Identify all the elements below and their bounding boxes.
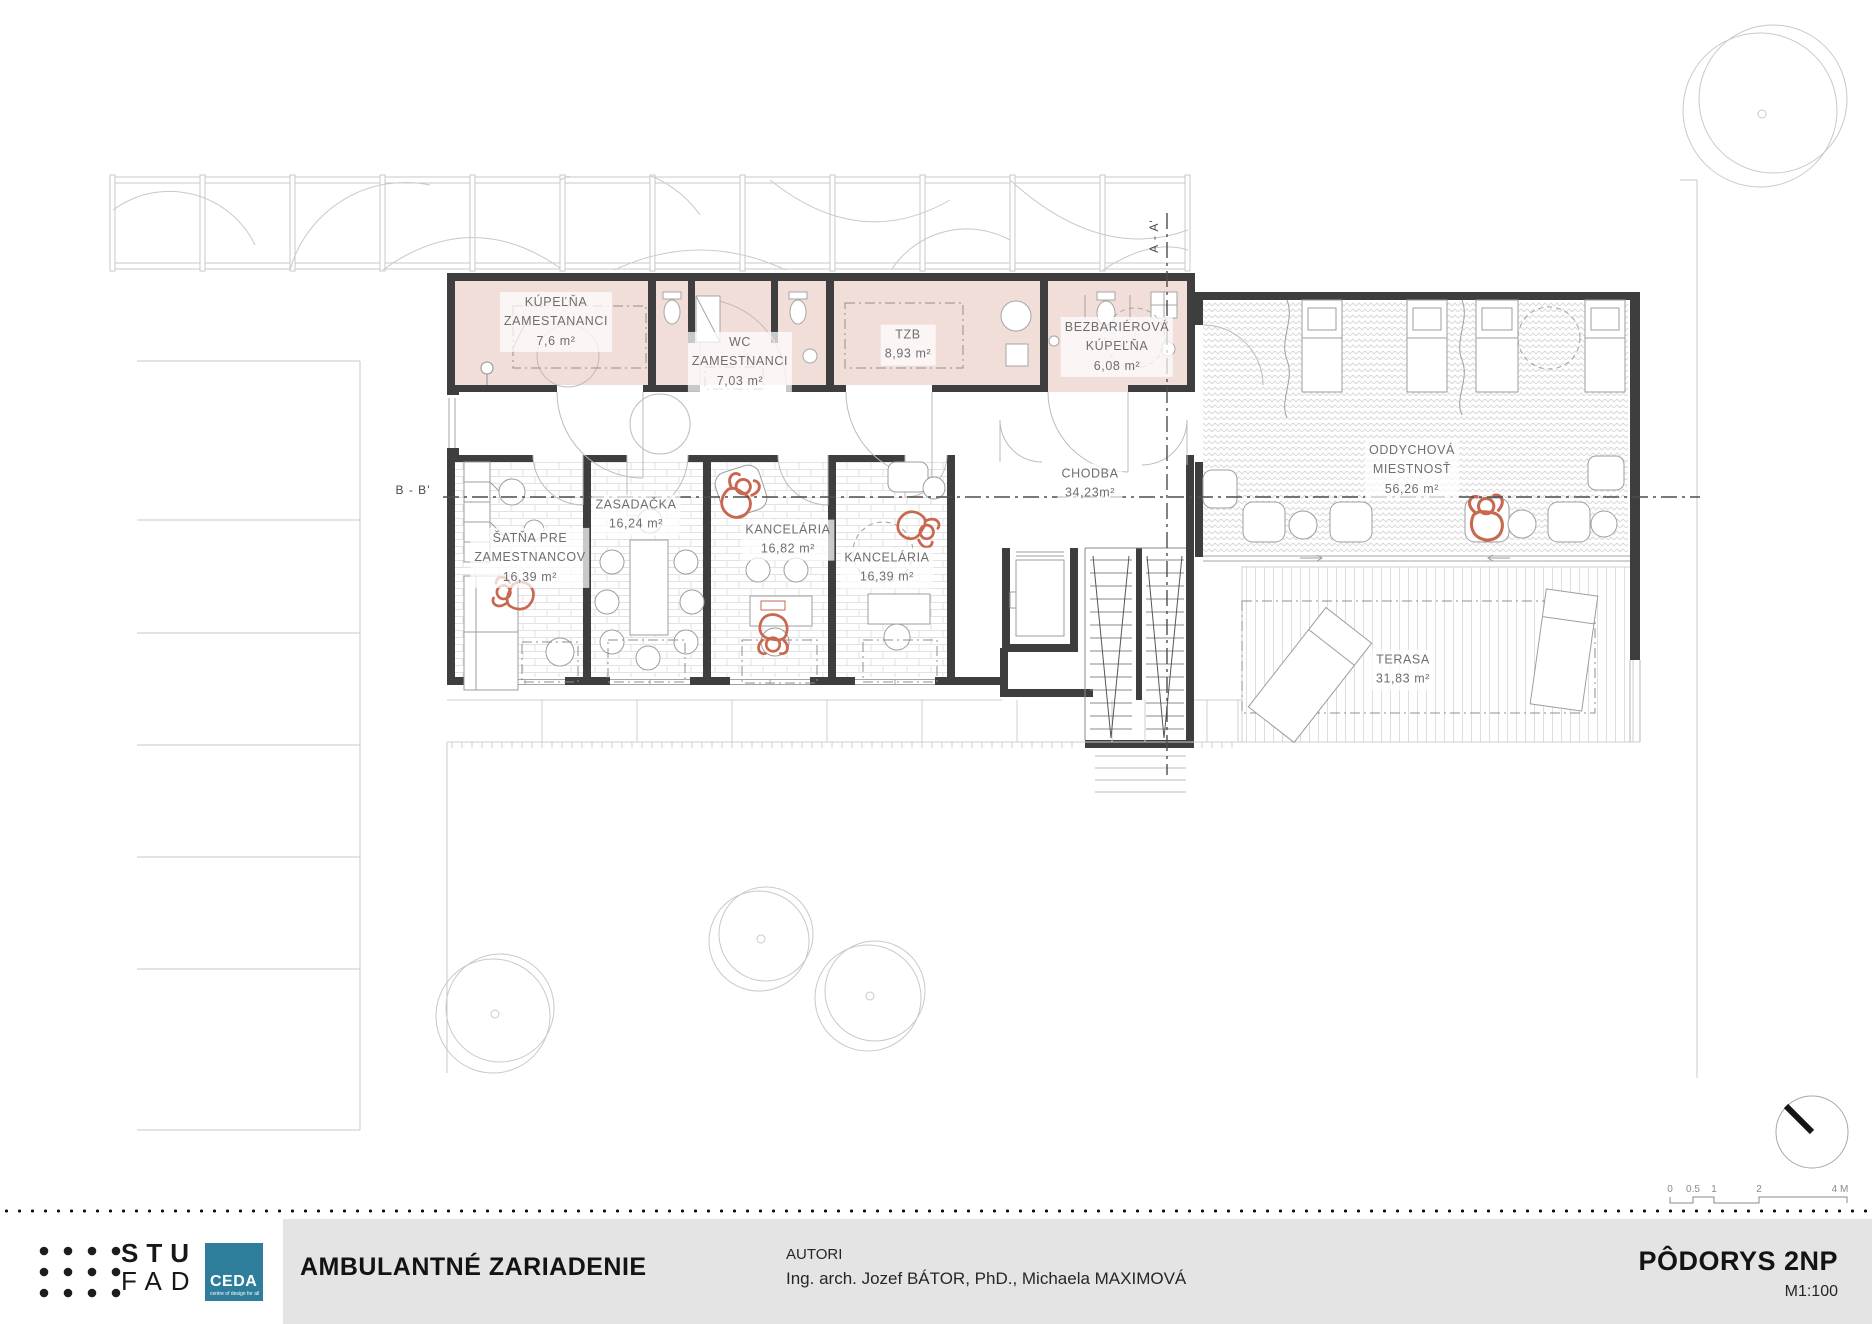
chair-icon [636, 646, 660, 670]
sink-icon [803, 349, 817, 363]
room-label-zasadacka: ZASADAČKA 16,24 m² [591, 495, 680, 536]
room-label-oddychova: ODDYCHOVÁ MIESTNOSŤ 56,26 m² [1365, 440, 1459, 500]
drawing-sheet: 0 0.5 1 2 4 M KÚPEĽŇA ZAMESTANANCI 7,6 m… [0, 0, 1872, 1324]
room-label-bezbar: BEZBARIÉROVÁ KÚPEĽŇA 6,08 m² [1061, 317, 1173, 377]
equipment-icon [1006, 344, 1028, 366]
room-name: ZAMESTNANCOV [474, 548, 585, 567]
site-pergola [110, 168, 1190, 272]
ceda-logo-subtext: centre of design for all [210, 1291, 259, 1297]
armchair-icon [1548, 502, 1590, 542]
room-area: 16,39 m² [844, 568, 929, 587]
side-table-icon [1508, 510, 1536, 538]
logo-fad: FAD [121, 1266, 199, 1297]
chair-icon [680, 590, 704, 614]
room-name: KANCELÁRIA [745, 521, 830, 540]
chair-icon [884, 624, 910, 650]
floor-plan-canvas: 0 0.5 1 2 4 M [0, 0, 1872, 1324]
bed-icon [1585, 300, 1625, 392]
toilet-icon [789, 292, 807, 324]
room-area: 7,6 m² [504, 332, 608, 351]
chair-icon [923, 477, 945, 499]
stu-dots-logo [36, 1241, 128, 1303]
room-name: KÚPEĽŇA [504, 293, 608, 312]
room-area: 8,93 m² [885, 345, 932, 364]
room-name: ZAMESTNANCI [692, 352, 788, 371]
section-label-b: B - B' [396, 483, 431, 497]
chair-icon [600, 550, 624, 574]
room-name: ODDYCHOVÁ [1369, 441, 1455, 460]
armchair-icon [1243, 502, 1285, 542]
room-label-kupelna: KÚPEĽŇA ZAMESTANANCI 7,6 m² [500, 292, 612, 352]
room-area: 16,24 m² [595, 515, 676, 534]
toilet-icon [663, 292, 681, 324]
armchair-icon [1203, 470, 1237, 508]
room-name: TERASA [1376, 651, 1430, 670]
scale-bar: 0 0.5 1 2 4 M [1667, 1184, 1848, 1203]
armchair-icon [888, 462, 928, 492]
elevator [1010, 552, 1064, 636]
meeting-table-icon [630, 540, 668, 635]
dotted-separator [0, 1209, 1872, 1213]
chair-icon [784, 558, 808, 582]
ceda-logo-text: CEDA [210, 1273, 257, 1291]
scale-tick: 1 [1711, 1184, 1717, 1195]
side-table-icon [1289, 511, 1317, 539]
room-name: CHODBA [1061, 465, 1118, 484]
chair-icon [674, 550, 698, 574]
room-area: 7,03 m² [692, 372, 788, 391]
room-name: BEZBARIÉROVÁ [1065, 318, 1169, 337]
room-name: TZB [885, 326, 932, 345]
armchair-icon [1588, 456, 1624, 490]
exterior-steps [1095, 756, 1186, 792]
bed-icon [1302, 300, 1342, 392]
room-label-kancelaria-1: KANCELÁRIA 16,82 m² [741, 520, 834, 561]
room-area: 16,39 m² [474, 568, 585, 587]
project-title: AMBULANTNÉ ZARIADENIE [300, 1253, 647, 1282]
parking-stalls [137, 361, 360, 1130]
room-label-wc: WC ZAMESTNANCI 7,03 m² [688, 332, 792, 392]
bed-icon [1407, 300, 1447, 392]
chair-icon [674, 630, 698, 654]
chair-icon [600, 630, 624, 654]
room-name: MIESTNOSŤ [1369, 460, 1455, 479]
boiler-icon [1001, 301, 1031, 331]
chair-icon [595, 590, 619, 614]
site-tree-top-right [1683, 25, 1847, 187]
room-name: ZASADAČKA [595, 496, 676, 515]
room-area: 16,82 m² [745, 540, 830, 559]
logo-stu: STU [121, 1238, 197, 1269]
room-area: 34,23m² [1061, 484, 1118, 503]
room-name: KANCELÁRIA [844, 549, 929, 568]
authors-label: AUTORI [786, 1246, 842, 1263]
ceda-logo: CEDA centre of design for all [205, 1243, 263, 1301]
room-label-tzb: TZB 8,93 m² [881, 325, 936, 366]
elevator-car [1016, 560, 1064, 636]
armchair-icon [1330, 502, 1372, 542]
stool-icon [499, 479, 525, 505]
room-label-satna: ŠATŇA PRE ZAMESTNANCOV 16,39 m² [470, 528, 589, 588]
scale-tick: 0 [1667, 1184, 1673, 1195]
room-name: ŠATŇA PRE [474, 529, 585, 548]
room-label-chodba: CHODBA 34,23m² [1057, 464, 1122, 505]
scale-tick: 4 M [1832, 1184, 1849, 1195]
scale-tick: 0.5 [1686, 1184, 1700, 1195]
bed-icon [1476, 300, 1518, 392]
scale-tick: 2 [1756, 1184, 1762, 1195]
shower-stall-icon [1151, 292, 1177, 318]
desk-icon [868, 594, 930, 624]
section-label-a: A - A' [1147, 219, 1161, 253]
room-area: 6,08 m² [1065, 357, 1169, 376]
site-trees-bottom [436, 887, 925, 1073]
authors-names: Ing. arch. Jozef BÁTOR, PhD., Michaela M… [786, 1269, 1186, 1289]
stairs [1085, 548, 1186, 792]
side-table-icon [1591, 511, 1617, 537]
room-name: WC [692, 333, 788, 352]
room-area: 56,26 m² [1369, 480, 1455, 499]
drawing-title: PÔDORYS 2NP [1638, 1246, 1838, 1277]
drawing-scale: M1:100 [1785, 1283, 1838, 1301]
north-arrow-icon [1776, 1096, 1848, 1168]
room-label-kancelaria-2: KANCELÁRIA 16,39 m² [840, 548, 933, 589]
room-area: 31,83 m² [1376, 670, 1430, 689]
room-label-terasa: TERASA 31,83 m² [1372, 650, 1434, 691]
room-name: ZAMESTANANCI [504, 312, 608, 331]
room-name: KÚPEĽŇA [1065, 337, 1169, 356]
chair-icon [746, 558, 770, 582]
